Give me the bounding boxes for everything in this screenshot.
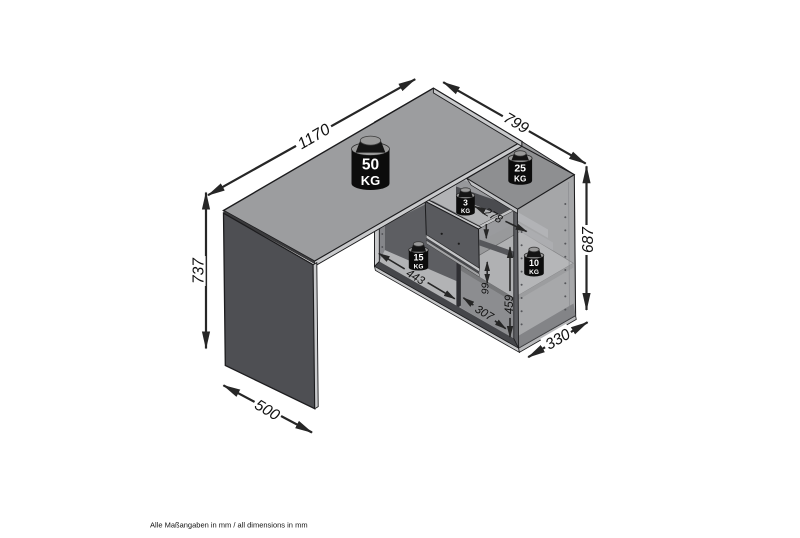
- svg-text:KG: KG: [361, 173, 381, 188]
- svg-text:3: 3: [463, 198, 468, 208]
- svg-text:15: 15: [413, 253, 423, 263]
- svg-text:Alle Maßangaben in mm / all di: Alle Maßangaben in mm / all dimensions i…: [150, 521, 308, 530]
- svg-text:KG: KG: [529, 269, 539, 276]
- svg-text:KG: KG: [514, 175, 526, 184]
- svg-text:99: 99: [480, 283, 492, 295]
- svg-text:10: 10: [529, 258, 539, 268]
- svg-text:KG: KG: [461, 209, 470, 215]
- svg-text:687: 687: [580, 226, 597, 253]
- svg-text:459: 459: [504, 294, 516, 314]
- svg-text:25: 25: [514, 163, 526, 175]
- svg-text:737: 737: [191, 257, 208, 284]
- svg-text:50: 50: [362, 157, 379, 174]
